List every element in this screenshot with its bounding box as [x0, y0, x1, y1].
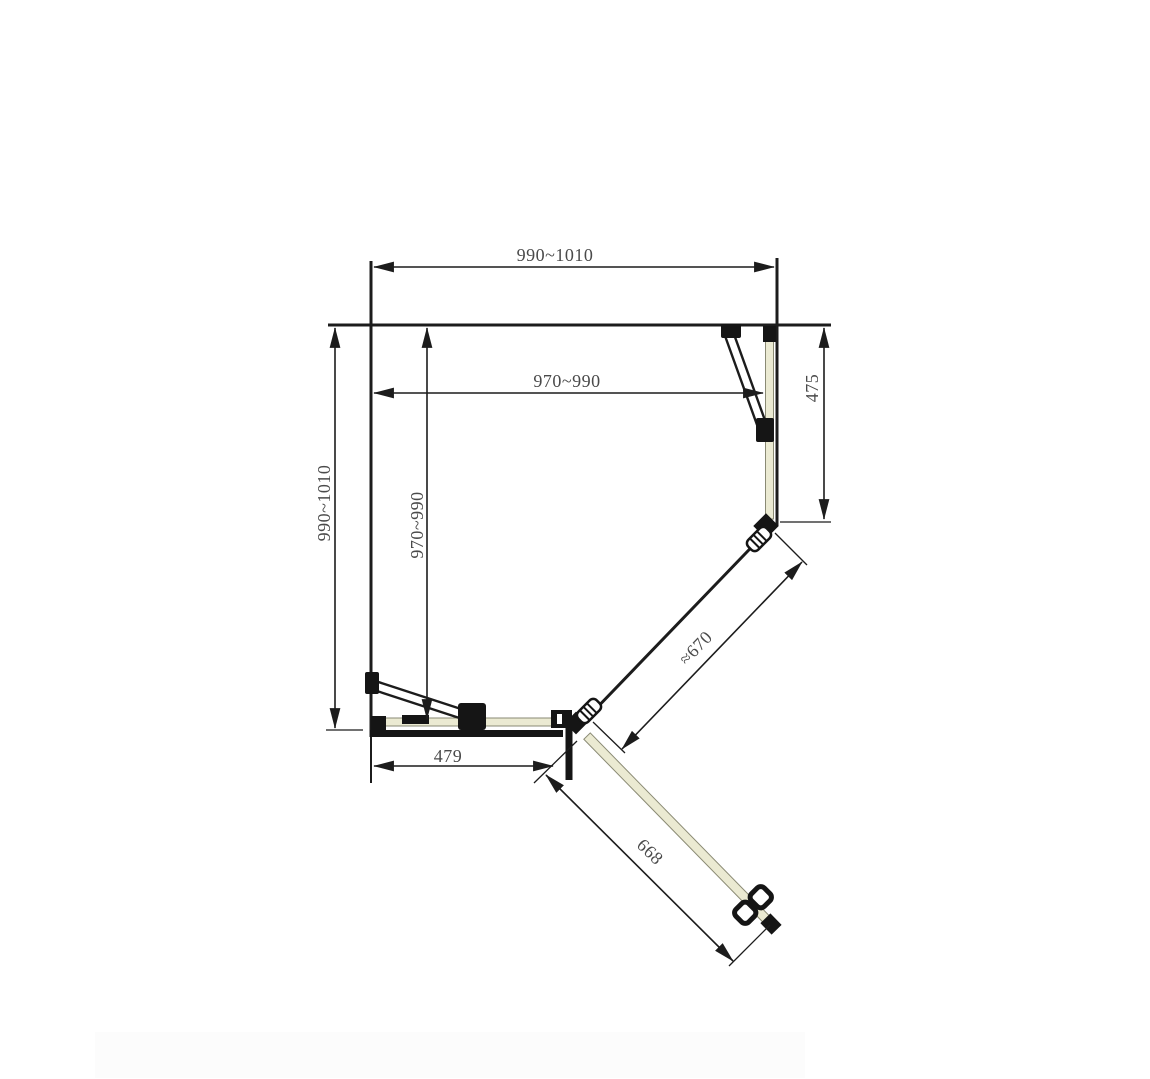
dim-label-top-width: 990~1010 [517, 245, 594, 265]
junction-clamp-slot [557, 714, 562, 724]
top-right-support-bracket-wall [721, 324, 741, 338]
shower-enclosure-plan-drawing: 990~1010 970~990 990~1010 970~990 475 ≈6… [0, 0, 1150, 1079]
drawing-canvas: 990~1010 970~990 990~1010 970~990 475 ≈6… [0, 0, 1150, 1079]
bottom-glass-mid-clamp [402, 715, 429, 724]
dim-label-bottom-panel: 479 [434, 746, 463, 766]
dim-label-left-height: 990~1010 [314, 465, 334, 542]
bottom-left-support-bracket-glass [458, 703, 486, 730]
page-background [0, 0, 1150, 1079]
right-glass-top-clamp [763, 326, 776, 342]
dim-label-right-panel: 475 [802, 374, 822, 403]
top-right-support-bracket-glass [756, 418, 774, 442]
dim-label-inner-height: 970~990 [407, 491, 427, 558]
bottom-glass-left-clamp [371, 716, 386, 733]
dim-label-inner-width: 970~990 [533, 371, 600, 391]
faint-watermark-smudge [95, 1032, 805, 1078]
bottom-frame-bar [370, 730, 563, 737]
bottom-left-support-bracket-wall [365, 672, 379, 694]
